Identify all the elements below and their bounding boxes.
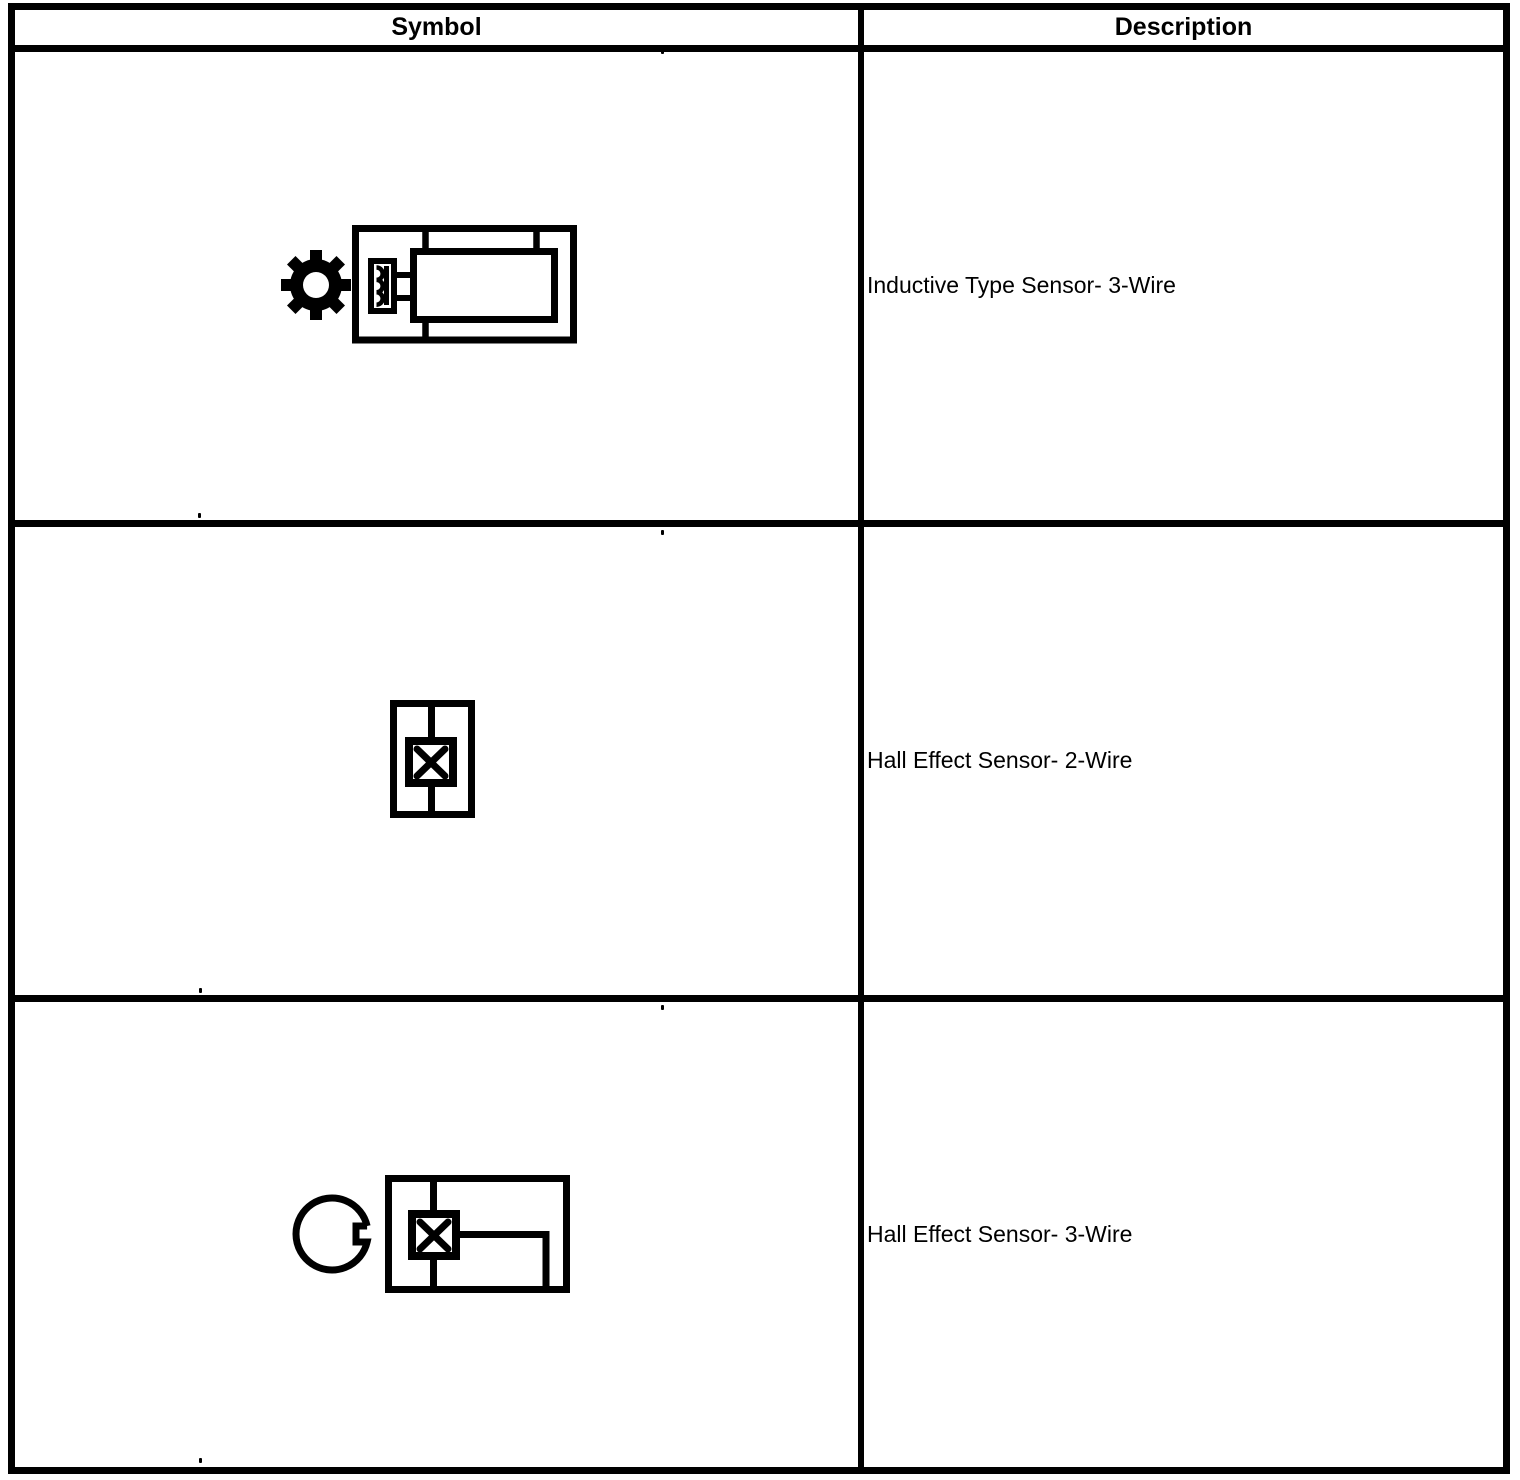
scan-artifact	[661, 49, 664, 54]
table-row: Hall Effect Sensor- 2-Wire	[15, 527, 1503, 1002]
scan-artifact	[199, 1458, 202, 1463]
hall-effect-sensor-3-wire-icon	[15, 1002, 858, 1467]
table-row: Inductive Type Sensor- 3-Wire	[15, 52, 1503, 527]
description-cell: Inductive Type Sensor- 3-Wire	[864, 52, 1503, 520]
description-text: Hall Effect Sensor- 3-Wire	[867, 1221, 1132, 1249]
description-text: Inductive Type Sensor- 3-Wire	[867, 272, 1176, 300]
inductive-type-sensor-3-wire-icon	[15, 52, 858, 520]
side-wire	[456, 1235, 546, 1292]
column-header-symbol: Symbol	[15, 10, 864, 45]
coil-icon	[377, 268, 383, 305]
inductive-sensor-schematic	[356, 225, 574, 343]
table-header-row: Symbol Description	[15, 10, 1503, 52]
description-cell: Hall Effect Sensor- 2-Wire	[864, 527, 1503, 995]
scan-artifact	[198, 513, 201, 518]
gear-icon	[281, 250, 351, 320]
hall-effect-sensor-2-wire-icon	[15, 527, 858, 995]
reluctor-wheel-icon	[296, 1198, 367, 1270]
symbol-cell	[15, 1002, 864, 1467]
description-text: Hall Effect Sensor- 2-Wire	[867, 747, 1132, 775]
scan-artifact	[199, 988, 202, 993]
column-header-description: Description	[864, 10, 1503, 45]
symbol-cell	[15, 527, 864, 995]
scan-artifact	[661, 1005, 664, 1010]
description-cell: Hall Effect Sensor- 3-Wire	[864, 1002, 1503, 1467]
table-row: Hall Effect Sensor- 3-Wire	[15, 1002, 1503, 1467]
sensor-symbol-legend-table: Symbol Description	[8, 3, 1510, 1474]
scan-artifact	[661, 530, 664, 535]
symbol-cell	[15, 52, 864, 520]
